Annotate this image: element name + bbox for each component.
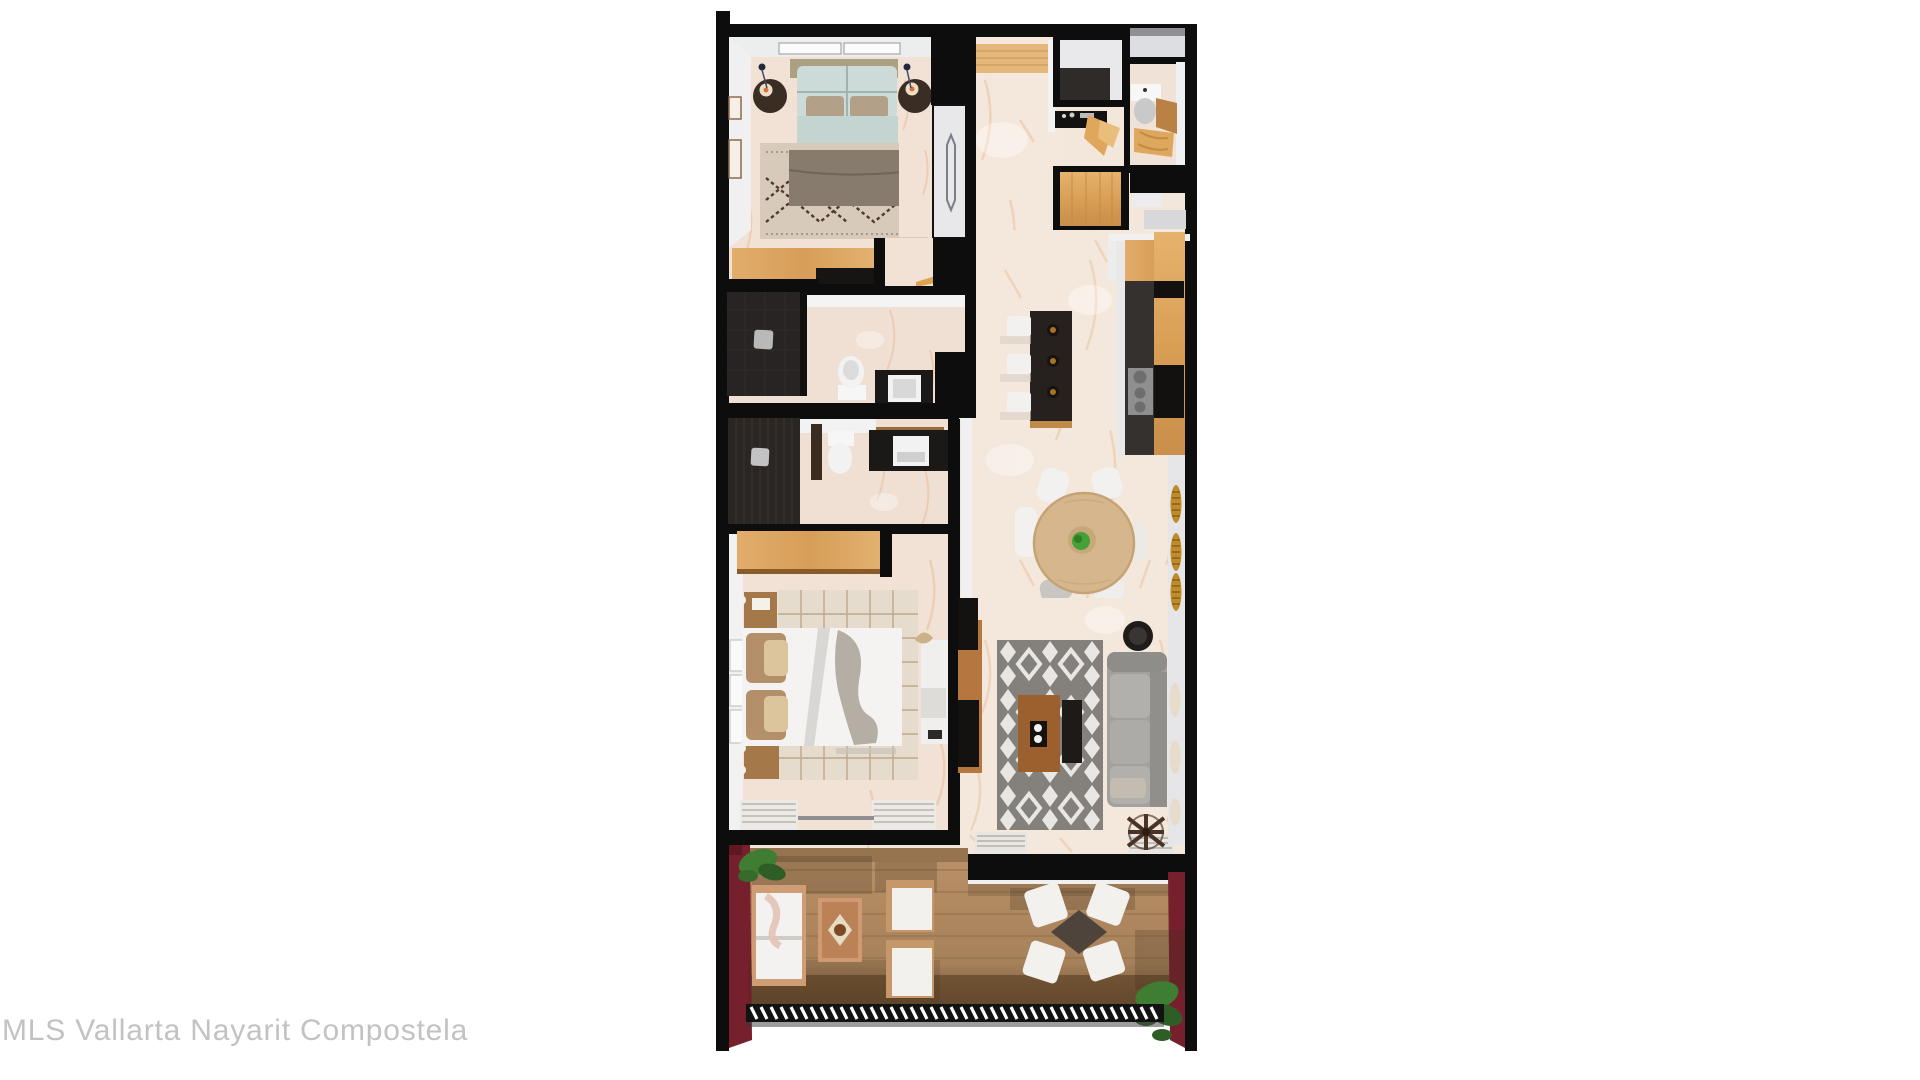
svg-text:MLS Vallarta Nayarit Compostel: MLS Vallarta Nayarit Compostela (2, 1014, 468, 1047)
